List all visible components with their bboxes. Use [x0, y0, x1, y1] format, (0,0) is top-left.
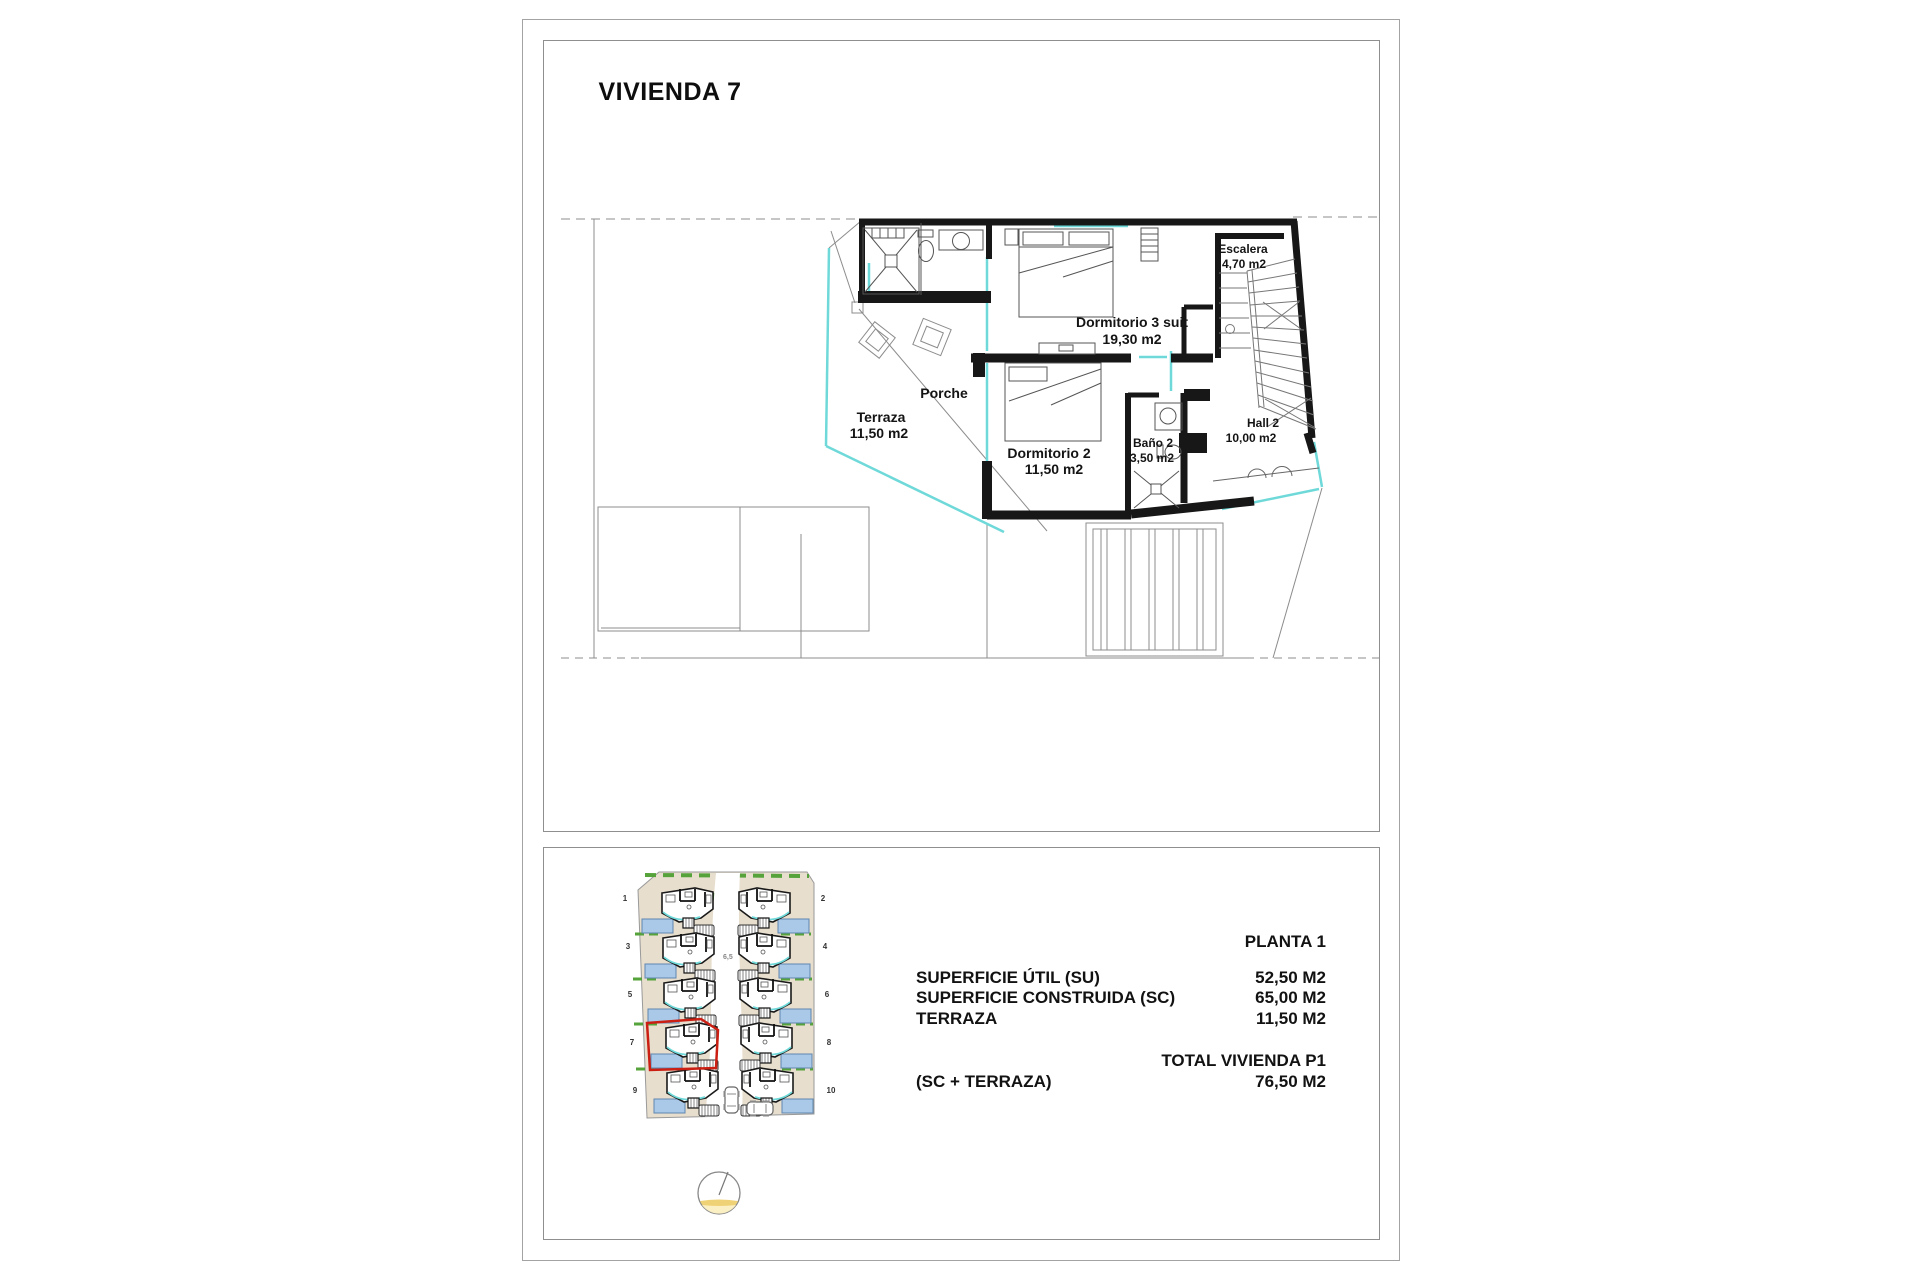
toilet-cistern: [918, 230, 933, 237]
spec-row: SUPERFICIE CONSTRUIDA (SC) 65,00 M2: [916, 988, 1326, 1008]
summary-panel: 6,5: [543, 847, 1380, 1240]
unit-number-10: 10: [827, 1086, 836, 1095]
total-row: (SC + TERRAZA) 76,50 M2: [916, 1072, 1326, 1092]
unit-number-1: 1: [623, 894, 628, 903]
unit-number-8: 8: [827, 1038, 832, 1047]
total-value: 76,50 M2: [1255, 1072, 1326, 1092]
label-dormitorio3-area: 19,30 m2: [1102, 331, 1161, 347]
label-hall2: Hall 2: [1247, 416, 1279, 430]
page-title: VIVIENDA 7: [555, 78, 785, 107]
wardrobe: [1141, 228, 1158, 261]
unit-number-4: 4: [823, 942, 828, 951]
label-hall2-area: 10,00 m2: [1226, 431, 1277, 445]
unit-number-6: 6: [825, 990, 830, 999]
sink-counter-2: [1155, 403, 1182, 430]
total-label: TOTAL VIVIENDA P1: [1161, 1051, 1326, 1071]
label-terraza: Terraza: [857, 409, 906, 425]
porch-table: [913, 318, 951, 355]
spec-label: SUPERFICIE CONSTRUIDA (SC): [916, 988, 1175, 1008]
floorplan-drawing: Terraza 11,50 m2 Porche Dormitorio 2 11,…: [544, 41, 1379, 831]
bed-dormitorio2: [1005, 363, 1101, 441]
car-icon: [724, 1087, 740, 1113]
bedroom3-furniture: [1005, 228, 1158, 317]
spec-label: SUPERFICIE ÚTIL (SU): [916, 968, 1100, 988]
hall-details: [1213, 466, 1319, 481]
label-bano2-area: 3,50 m2: [1130, 451, 1174, 465]
unit-number-3: 3: [626, 942, 631, 951]
unit-number-7: 7: [630, 1038, 635, 1047]
spec-row: TERRAZA 11,50 M2: [916, 1009, 1326, 1029]
label-escalera-area: 4,70 m2: [1222, 257, 1266, 271]
terrace-chair: [859, 322, 895, 358]
plan-sheet-page: Terraza 11,50 m2 Porche Dormitorio 2 11,…: [0, 0, 1920, 1280]
spec-label: TERRAZA: [916, 1009, 997, 1029]
bed-dormitorio3: [1019, 229, 1113, 317]
label-dormitorio2-area: 11,50 m2: [1025, 461, 1084, 477]
road-width-label: 6,5: [723, 954, 733, 961]
sink-icon: [953, 233, 970, 250]
siteplan-drawing: 6,5: [544, 848, 1379, 1239]
unit-number-9: 9: [633, 1086, 638, 1095]
spec-value: 11,50 M2: [1256, 1009, 1326, 1029]
car-icon: [747, 1101, 773, 1117]
label-bano2: Baño 2: [1133, 436, 1173, 450]
label-terraza-area: 11,50 m2: [850, 425, 909, 441]
floorplan-panel: Terraza 11,50 m2 Porche Dormitorio 2 11,…: [543, 40, 1380, 832]
spec-value: 52,50 M2: [1255, 968, 1326, 988]
floor-title: PLANTA 1: [1245, 932, 1326, 952]
bathroom-fixtures: [863, 223, 983, 295]
label-dormitorio3: Dormitorio 3 suit: [1076, 314, 1188, 330]
label-dormitorio2: Dormitorio 2: [1007, 445, 1090, 461]
unit-number-2: 2: [821, 894, 826, 903]
spec-row: SUPERFICIE ÚTIL (SU) 52,50 M2: [916, 968, 1326, 988]
compass-icon: [698, 1172, 740, 1214]
total-sublabel: (SC + TERRAZA): [916, 1072, 1052, 1092]
sink-icon-2: [1160, 408, 1176, 424]
unit-number-5: 5: [628, 990, 633, 999]
spec-value: 65,00 M2: [1255, 988, 1326, 1008]
label-escalera: Escalera: [1218, 242, 1268, 256]
label-porche: Porche: [920, 385, 968, 401]
